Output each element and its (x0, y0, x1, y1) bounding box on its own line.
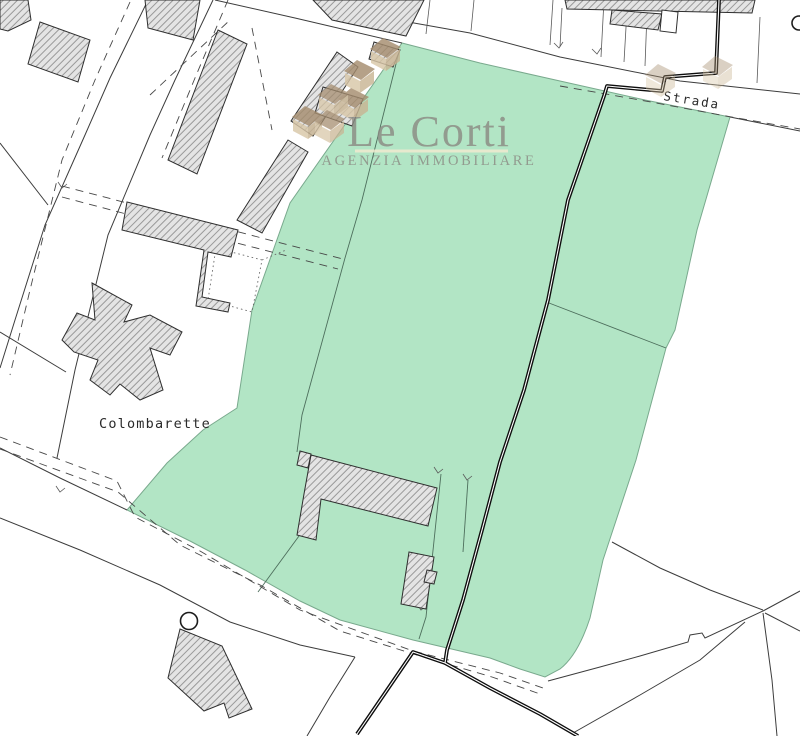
building-footprint (565, 0, 755, 13)
building-footprint (168, 629, 252, 718)
building-footprint (28, 22, 90, 82)
building-footprint (122, 202, 238, 312)
building-footprint (0, 0, 31, 31)
logo-title: Le Corti (347, 107, 511, 156)
colombarette-locality-label: Colombarette (99, 416, 211, 432)
logo-subtitle: AGENZIA IMMOBILIARE (322, 153, 537, 169)
building-footprint (168, 30, 247, 174)
building-footprint (297, 451, 311, 468)
building-footprint (313, 0, 424, 36)
building-footprint (145, 0, 200, 40)
well-circle (181, 613, 198, 630)
cadastral-map: Strada Colombarette Le Corti AGENZIA IMM… (0, 0, 800, 736)
building-footprint (62, 283, 182, 400)
building-footprint (610, 10, 662, 30)
well-circle (792, 16, 800, 30)
map-svg: Strada Colombarette Le Corti AGENZIA IMM… (0, 0, 800, 736)
building-annex (660, 10, 678, 33)
